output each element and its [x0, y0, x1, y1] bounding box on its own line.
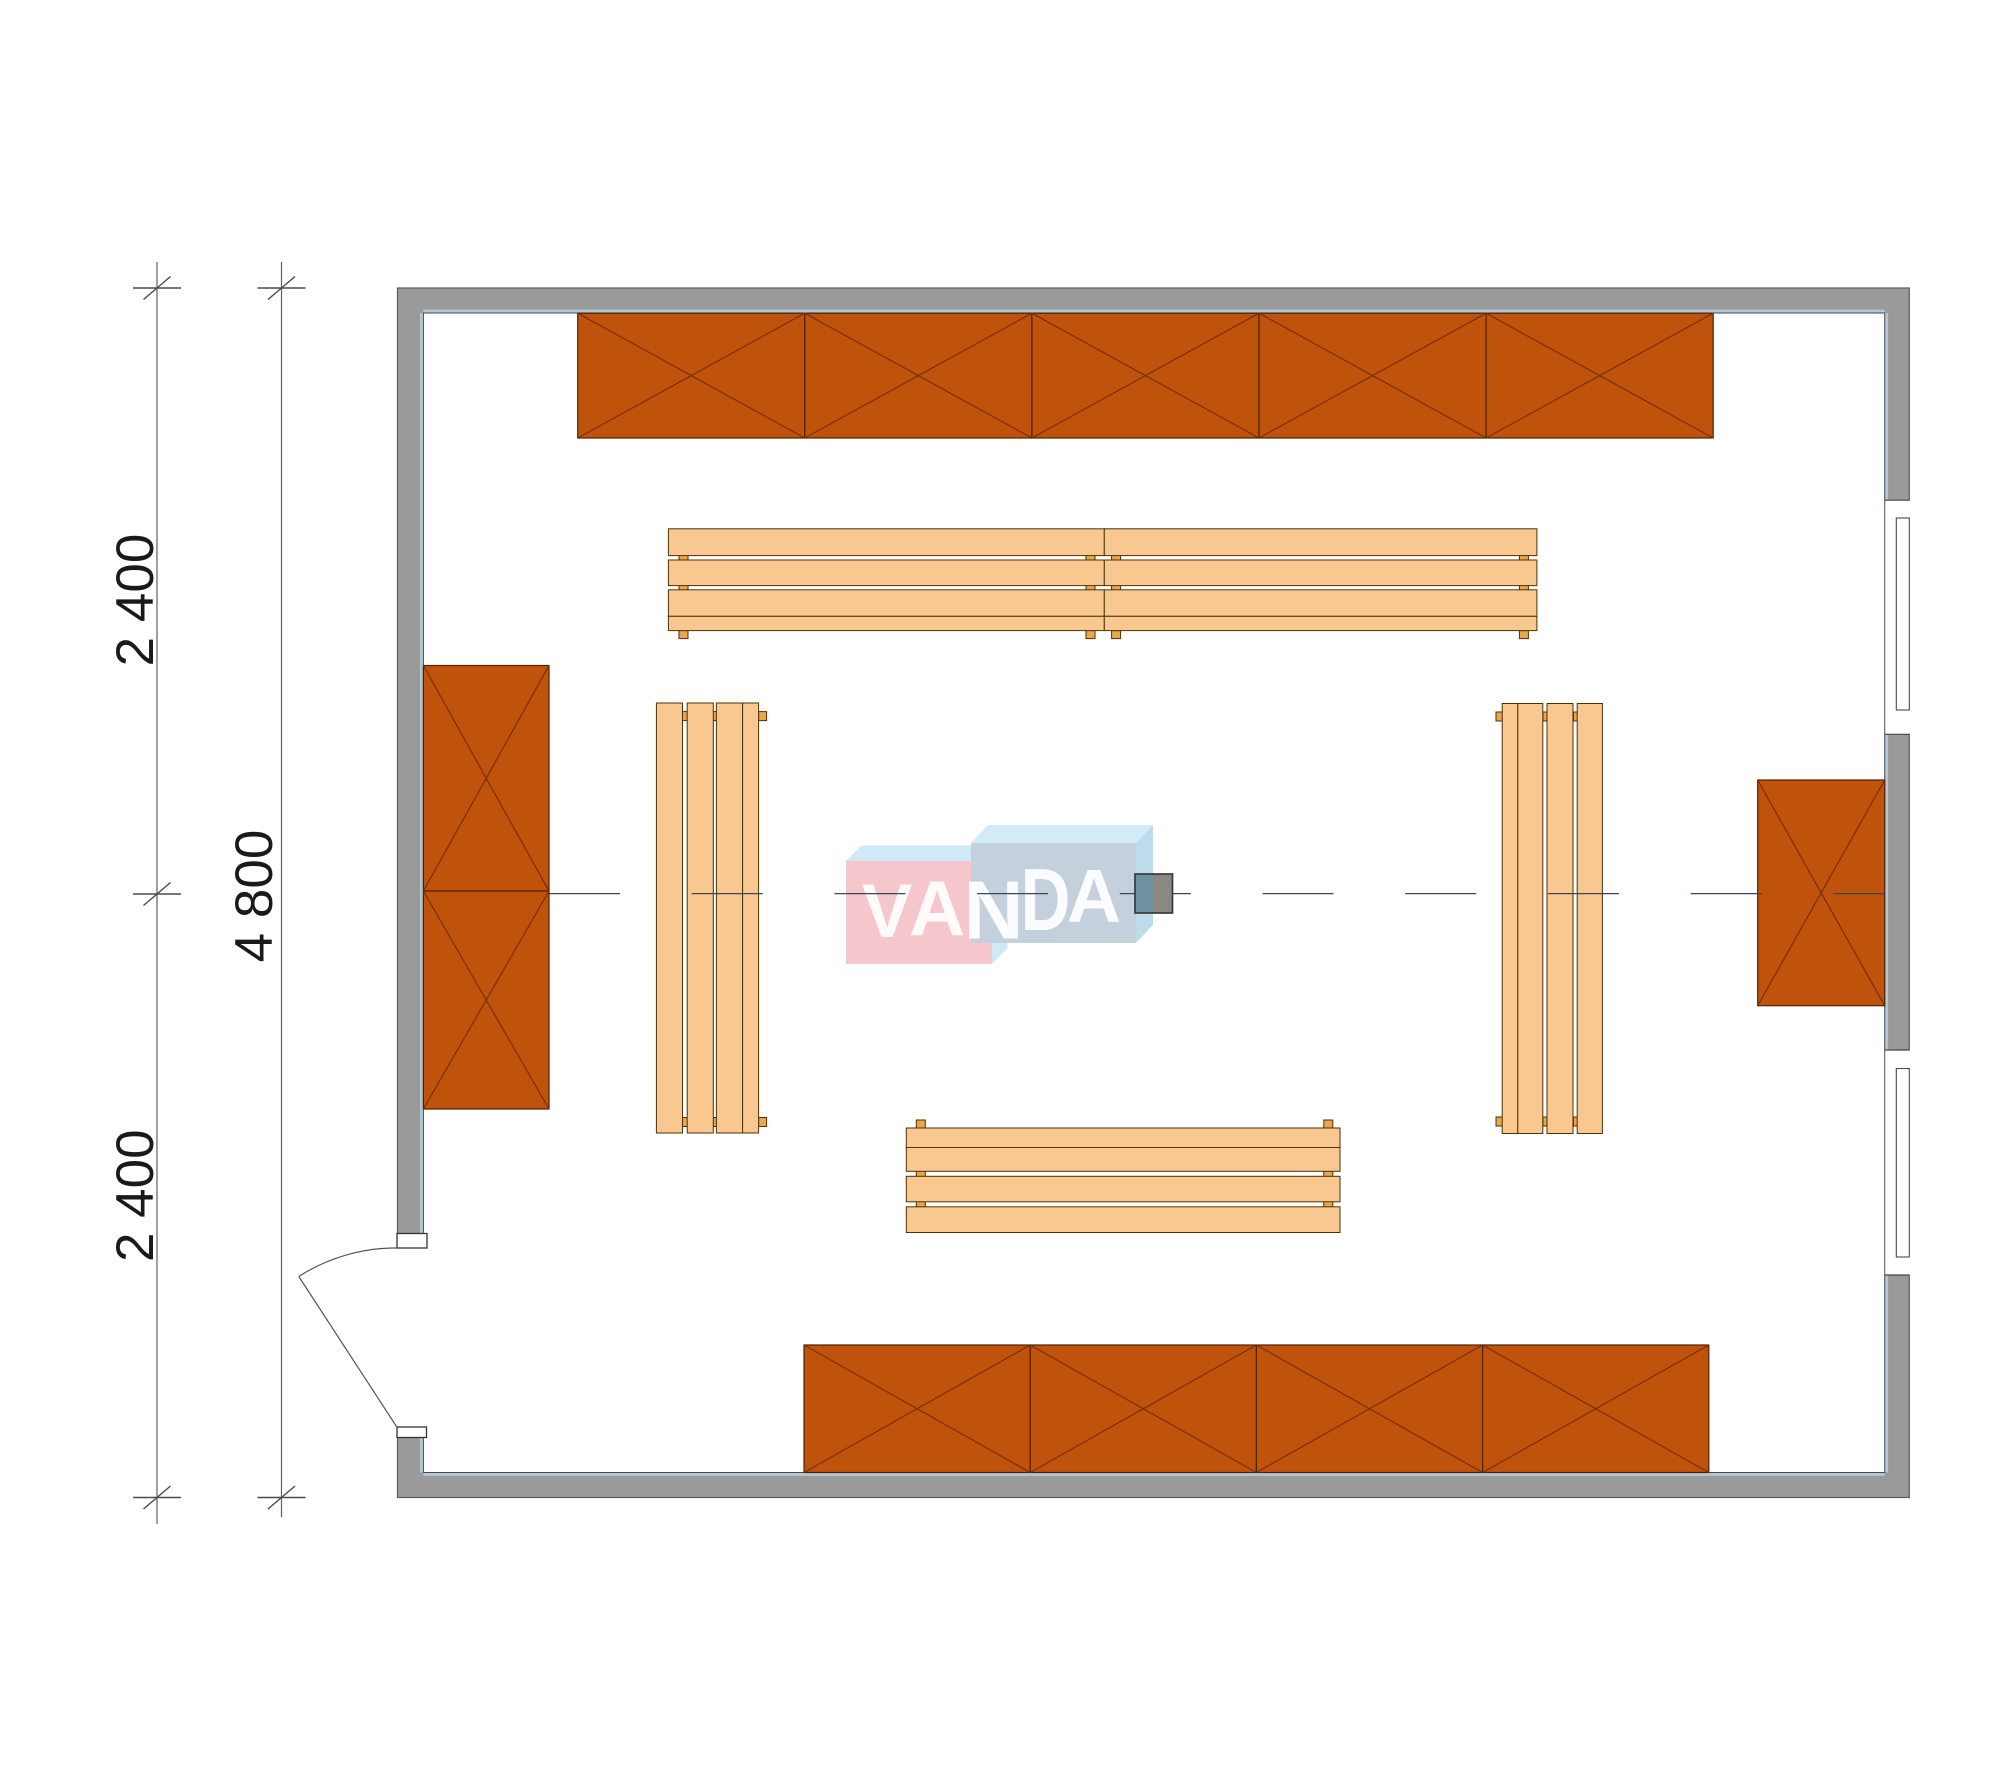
- svg-text:2 400: 2 400: [106, 1129, 165, 1262]
- svg-text:D: D: [1021, 850, 1071, 949]
- svg-text:A: A: [909, 864, 965, 952]
- svg-text:2 400: 2 400: [106, 534, 165, 667]
- svg-text:A: A: [1067, 854, 1121, 938]
- svg-text:N: N: [964, 864, 1024, 957]
- svg-text:4 800: 4 800: [225, 830, 284, 963]
- svg-text:V: V: [862, 869, 913, 954]
